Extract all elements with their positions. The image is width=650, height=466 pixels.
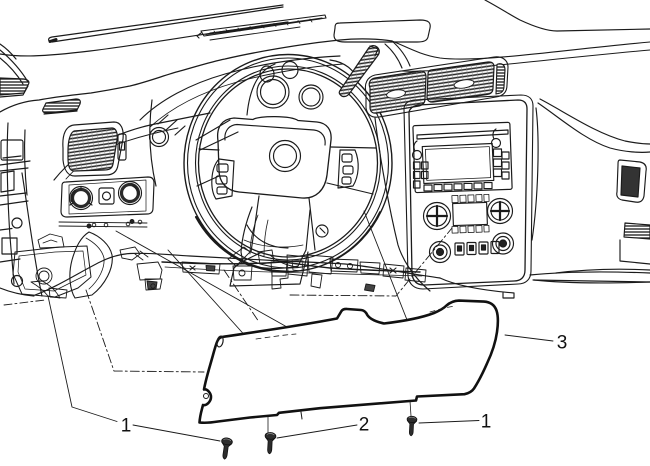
svg-text:1: 1 <box>481 412 492 433</box>
svg-text:1: 1 <box>121 416 132 437</box>
svg-text:3: 3 <box>557 333 568 354</box>
svg-text:2: 2 <box>359 415 370 436</box>
